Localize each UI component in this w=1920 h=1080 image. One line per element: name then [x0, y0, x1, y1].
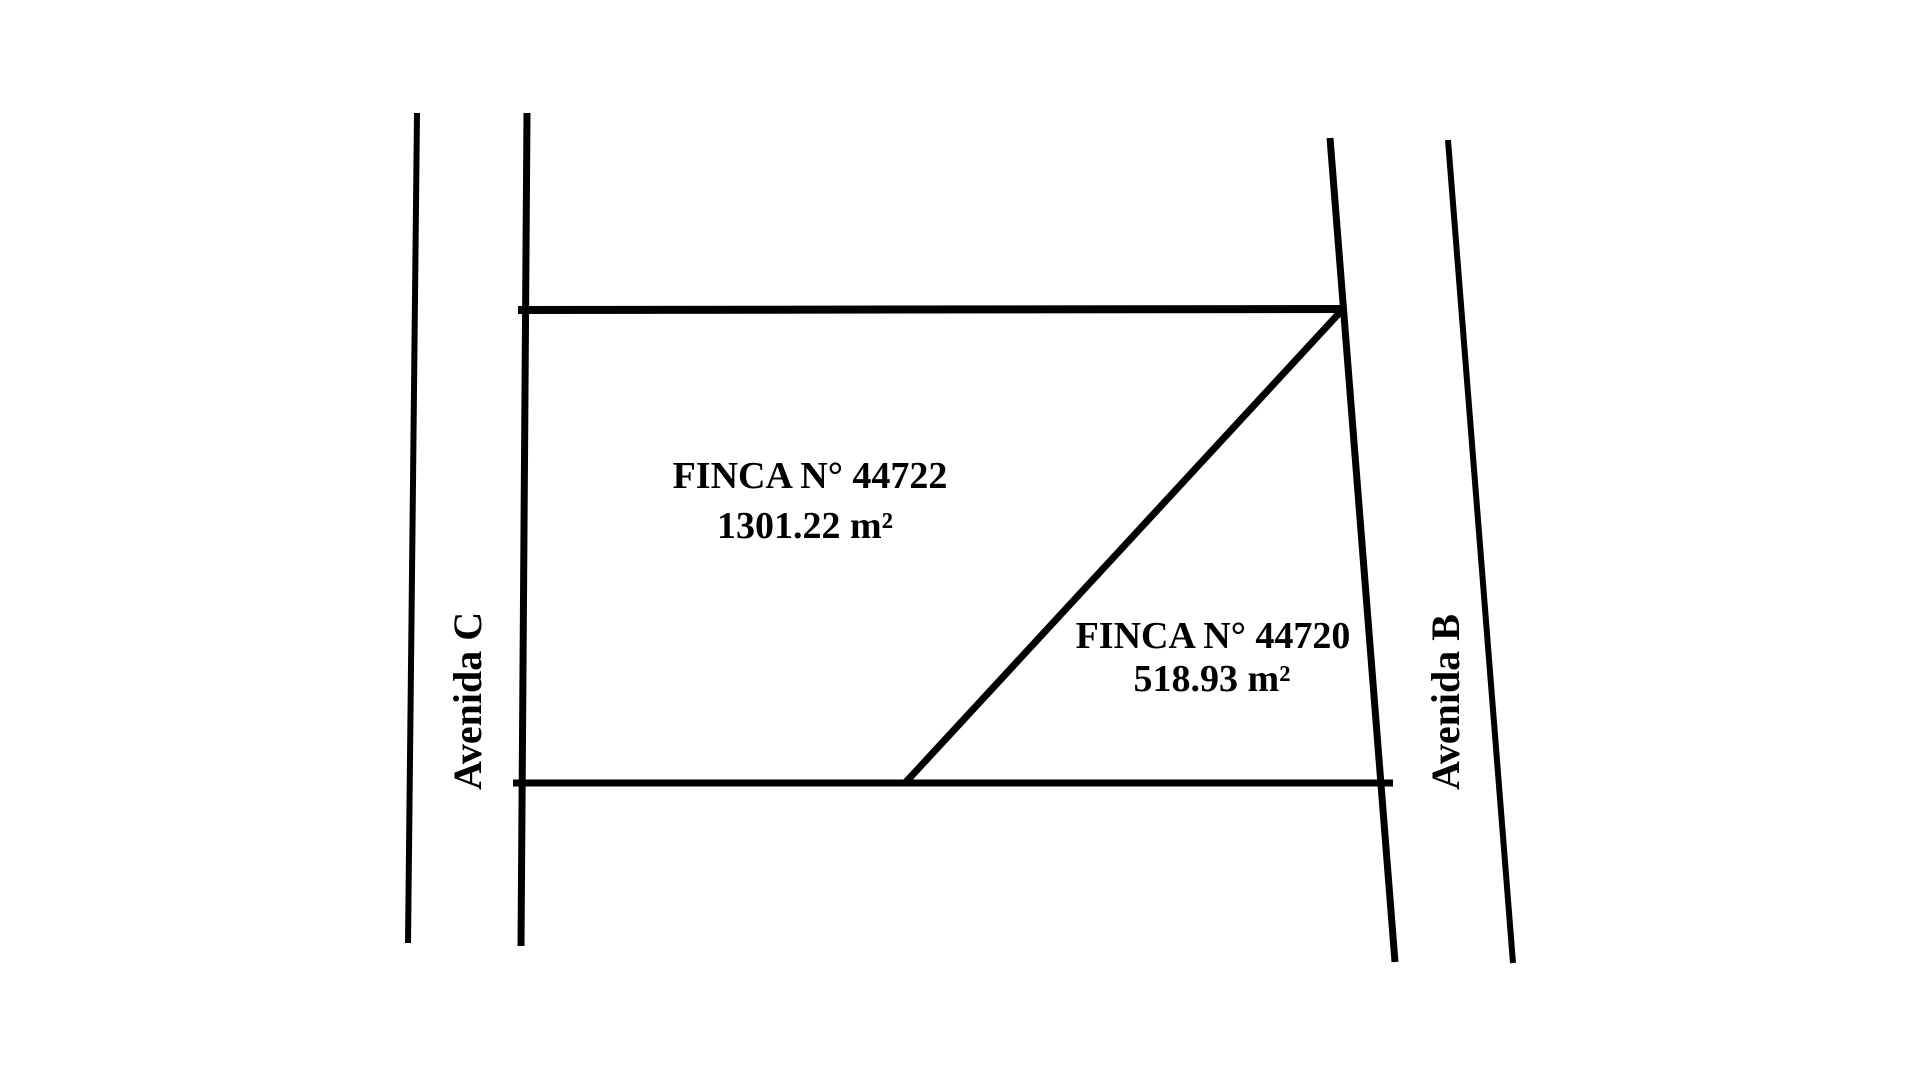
street-line-avenida-b-east: [1448, 140, 1513, 963]
parcel-area-finca-44720: 518.93 m²: [1133, 658, 1290, 700]
parcel-boundary-top: [518, 309, 1345, 310]
site-plan-canvas: FINCA N° 44722 1301.22 m² FINCA N° 44720…: [0, 0, 1920, 1080]
parcel-label-finca-44722: FINCA N° 44722: [673, 455, 948, 497]
street-label-avenida-c: Avenida C: [445, 612, 490, 790]
street-label-avenida-b: Avenida B: [1423, 614, 1468, 790]
street-line-avenida-c-west: [408, 113, 417, 943]
site-plan-drawing: FINCA N° 44722 1301.22 m² FINCA N° 44720…: [0, 0, 1920, 1080]
parcel-area-finca-44722: 1301.22 m²: [717, 505, 893, 547]
street-line-avenida-c-east: [521, 113, 527, 946]
parcel-label-finca-44720: FINCA N° 44720: [1076, 615, 1351, 657]
street-line-avenida-b-west: [1330, 138, 1395, 962]
parcel-divider-diagonal: [905, 309, 1343, 783]
